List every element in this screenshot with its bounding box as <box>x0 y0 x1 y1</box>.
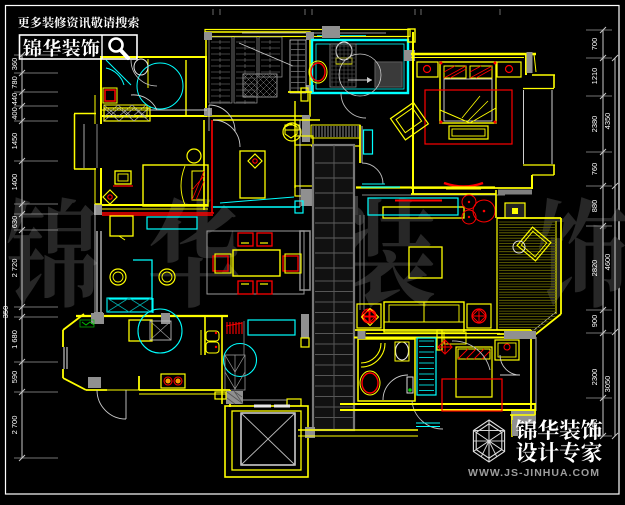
svg-text:1450: 1450 <box>10 133 19 150</box>
svg-text:700: 700 <box>590 38 599 51</box>
svg-text:2 720: 2 720 <box>10 259 19 278</box>
svg-text:590: 590 <box>10 371 19 384</box>
svg-text:350: 350 <box>1 306 10 319</box>
svg-text:2300: 2300 <box>590 369 599 386</box>
svg-text:760: 760 <box>590 163 599 176</box>
svg-text:900: 900 <box>590 315 599 328</box>
svg-text:2 700: 2 700 <box>10 416 19 435</box>
svg-text:WWW.JS-JINHUA.COM: WWW.JS-JINHUA.COM <box>468 467 600 479</box>
svg-text:3050: 3050 <box>603 376 612 393</box>
svg-text:880: 880 <box>590 200 599 213</box>
svg-text:360: 360 <box>10 58 19 71</box>
svg-text:400: 400 <box>10 107 19 120</box>
svg-text:1400: 1400 <box>10 174 19 191</box>
svg-text:630: 630 <box>10 216 19 229</box>
svg-text:2820: 2820 <box>590 260 599 277</box>
svg-text:2380: 2380 <box>590 116 599 133</box>
svg-text:1210: 1210 <box>590 68 599 85</box>
svg-text:4600: 4600 <box>603 254 612 271</box>
svg-text:1 680: 1 680 <box>10 330 19 349</box>
svg-text:4350: 4350 <box>603 113 612 130</box>
svg-text:780: 780 <box>10 76 19 89</box>
svg-text:440: 440 <box>10 93 19 106</box>
